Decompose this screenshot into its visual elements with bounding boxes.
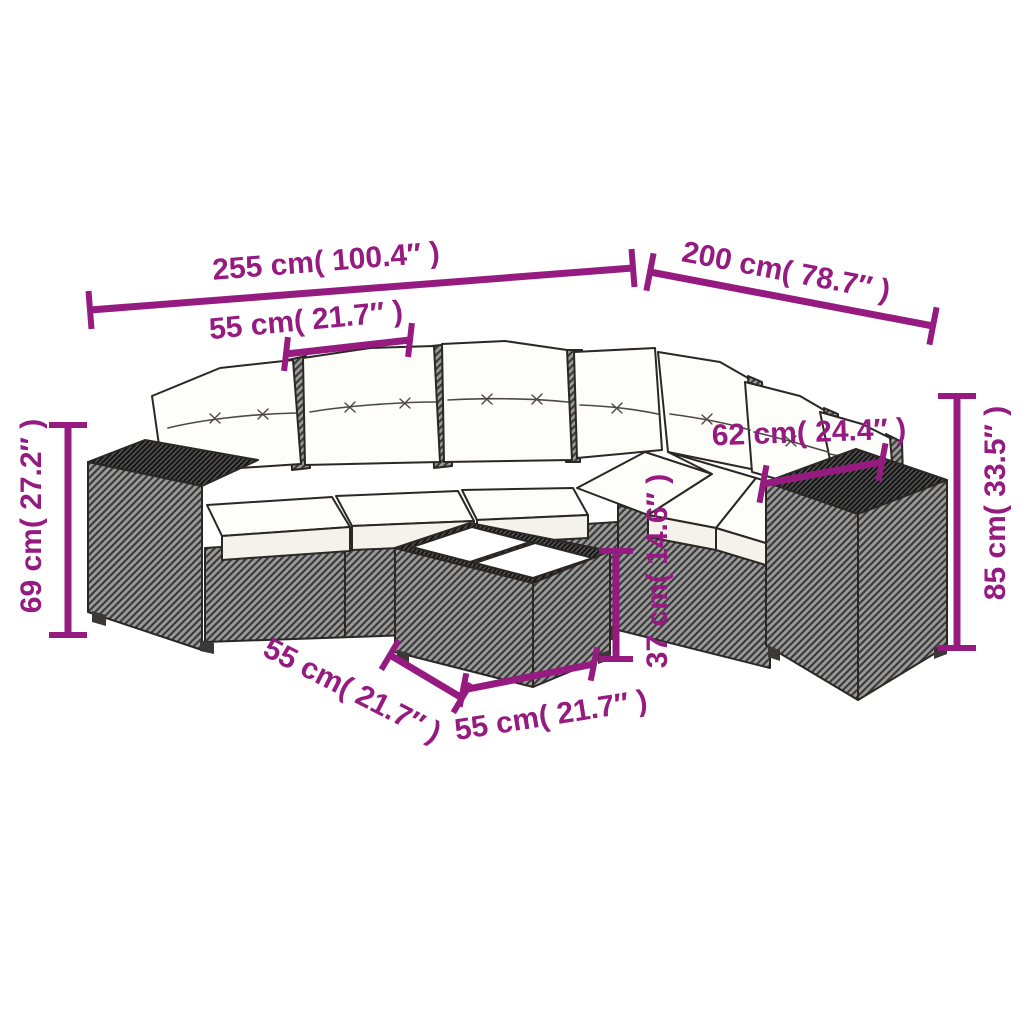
right-armrest: [766, 449, 947, 700]
product-dimension-diagram: 255 cm( 100.4″ ) 200 cm( 78.7″ ) 55 cm( …: [0, 0, 1024, 1024]
dimension-label-table-height: 37 cm( 14.6″ ): [643, 474, 673, 668]
sofa-set-illustration: [0, 0, 1024, 1024]
dimension-line-armrest-height: [49, 425, 87, 635]
dimension-label-corner-seat-depth: 62 cm( 24.4″ ): [711, 415, 906, 452]
back-cushion: [574, 348, 662, 458]
dimension-label-armrest-height: 69 cm( 27.2″ ): [17, 419, 47, 613]
coffee-table-illustration: [395, 523, 610, 687]
seat-cushion: [336, 491, 474, 526]
back-cushion: [442, 341, 572, 462]
back-cushion: [658, 352, 756, 470]
dimension-label-back-height: 85 cm( 33.5″ ): [981, 406, 1011, 600]
